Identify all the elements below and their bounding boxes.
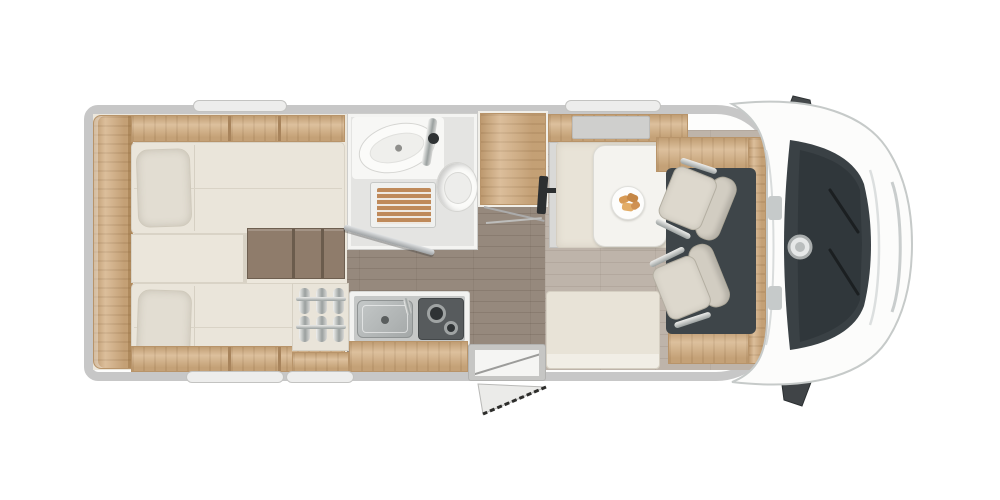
shower-grate: [377, 188, 431, 224]
window-bottom-mid: [286, 371, 354, 383]
badge-center: [795, 242, 805, 252]
bottle-rack-pipe: [333, 288, 344, 314]
locker-divider: [278, 347, 281, 371]
dashboard-vent: [768, 196, 782, 220]
dashboard-vent: [768, 286, 782, 310]
bottle-rack-pipe: [299, 288, 310, 314]
shower-tray: [370, 182, 436, 228]
sink-drain: [381, 316, 389, 324]
pillow-top: [136, 148, 193, 228]
wardrobe-cabinet: [480, 113, 546, 205]
entry-step-well: [468, 344, 546, 381]
dinette-bench-front: [546, 291, 660, 369]
step-divider: [292, 229, 295, 278]
motorhome-floorplan: [0, 0, 1000, 500]
kitchen-wood-front: [349, 341, 468, 372]
window-top-rear: [193, 100, 287, 112]
step-divider: [321, 229, 324, 278]
locker-divider: [228, 347, 231, 371]
rear-shelf: [93, 115, 133, 369]
entry-step-diagonal: [475, 353, 539, 375]
window-top-front: [565, 100, 661, 112]
bottle-rack-pipe: [333, 316, 344, 342]
burner: [427, 304, 446, 323]
toilet: [436, 162, 478, 212]
bench-backrest: [547, 354, 659, 368]
two-burner-hob: [418, 298, 464, 340]
bottle-rack-pipe: [316, 316, 327, 342]
entry-step-inner: [475, 350, 539, 376]
window-bottom-rear: [186, 371, 284, 383]
bottle-rack-pipe: [316, 288, 327, 314]
overhead-locker-top: [131, 115, 345, 142]
overhead-unit: [572, 116, 650, 139]
toilet-seat: [444, 172, 472, 204]
locker-divider: [228, 116, 231, 141]
fold-out-step: [470, 380, 560, 420]
bottle-rack-rail: [296, 297, 346, 301]
kitchen-wood-side: [292, 352, 349, 372]
dresser: [131, 234, 247, 283]
bottle-rack-pipe: [299, 316, 310, 342]
bottle-rack-rail: [296, 325, 346, 329]
cab-nose: [700, 80, 930, 420]
plate-with-food: [611, 186, 645, 220]
bed-steps: [247, 228, 345, 279]
burner: [444, 321, 458, 335]
locker-divider: [278, 116, 281, 141]
faucet-head: [428, 133, 439, 144]
